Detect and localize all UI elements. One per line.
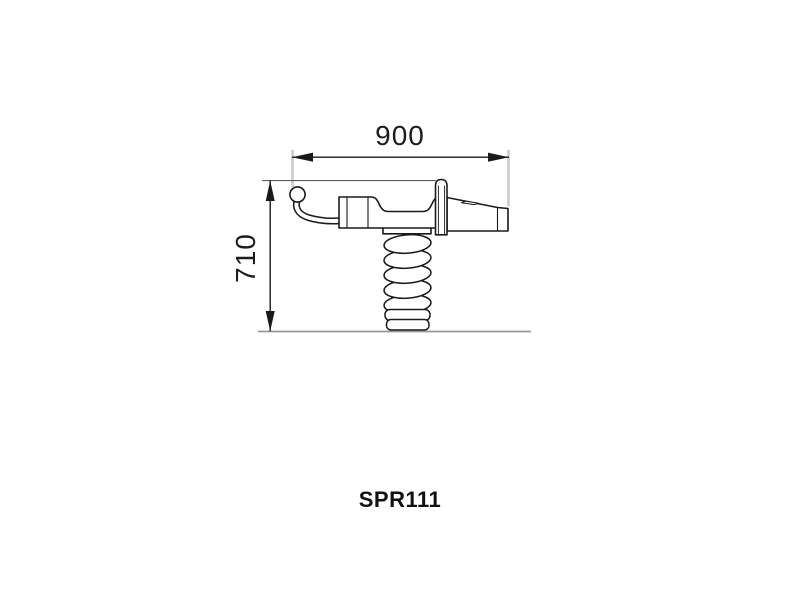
spring-top-plate [383,228,431,234]
height-dimension-label: 710 [231,215,261,301]
backrest-post [436,180,448,235]
height-dimension [266,181,275,332]
extension-lines [293,150,509,207]
arrow-down-icon [266,311,275,331]
handlebar-knob [290,187,305,202]
seat-body [339,197,447,228]
tail [447,198,508,232]
arrow-right-icon [488,153,509,162]
arrow-up-icon [266,181,275,201]
rider-figure [290,180,508,331]
drawing-canvas: 900 710 SPR111 [0,0,800,600]
coil-spring [383,233,431,330]
width-dimension [292,153,509,162]
arrow-left-icon [292,153,313,162]
product-code: SPR111 [0,487,800,513]
spring-base-coil-lower [387,320,430,331]
width-dimension-label: 900 [355,121,445,151]
